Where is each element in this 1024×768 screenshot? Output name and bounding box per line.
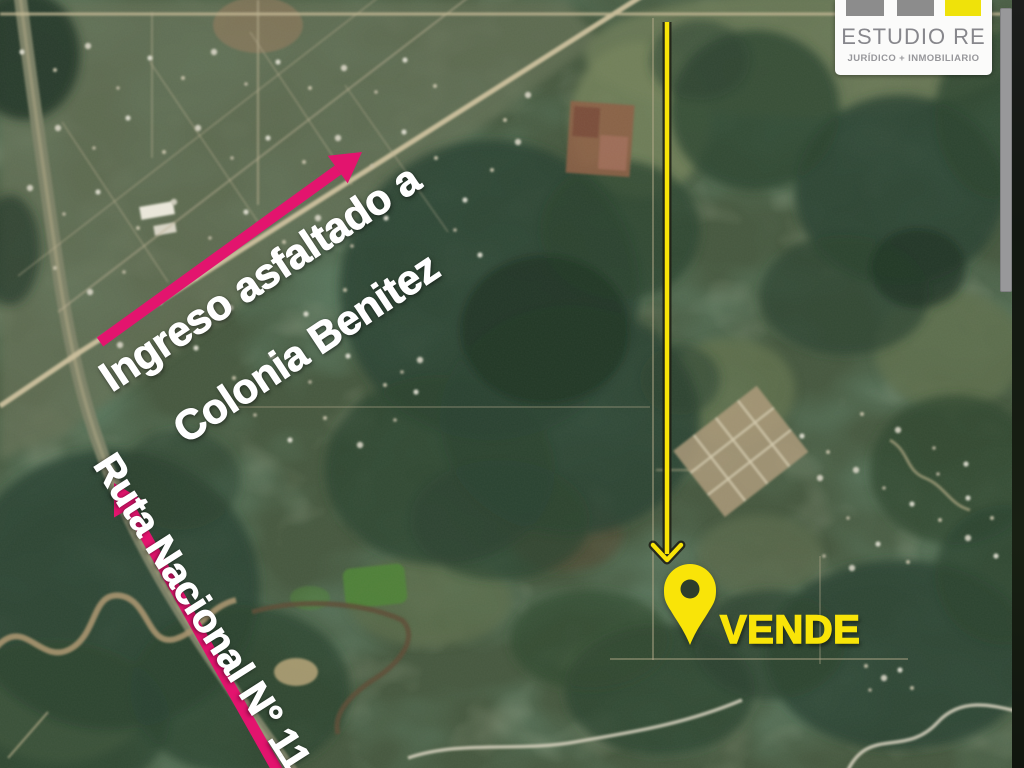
property-listing-map: Ingreso asfaltado a Colonia Benitez Ruta…	[0, 0, 1024, 768]
scrollbar[interactable]	[1000, 8, 1012, 292]
agency-logo: ESTUDIO RE JURÍDICO + INMOBILIARIO	[835, 0, 992, 75]
logo-square-icon	[897, 0, 934, 16]
logo-square-icon	[846, 0, 884, 16]
agency-name: ESTUDIO RE	[835, 24, 992, 50]
screen-edge	[1012, 0, 1024, 768]
logo-square-yellow-icon	[945, 0, 981, 16]
sale-label: VENDE	[720, 608, 860, 653]
satellite-map	[0, 0, 1024, 768]
agency-tagline: JURÍDICO + INMOBILIARIO	[835, 53, 992, 64]
